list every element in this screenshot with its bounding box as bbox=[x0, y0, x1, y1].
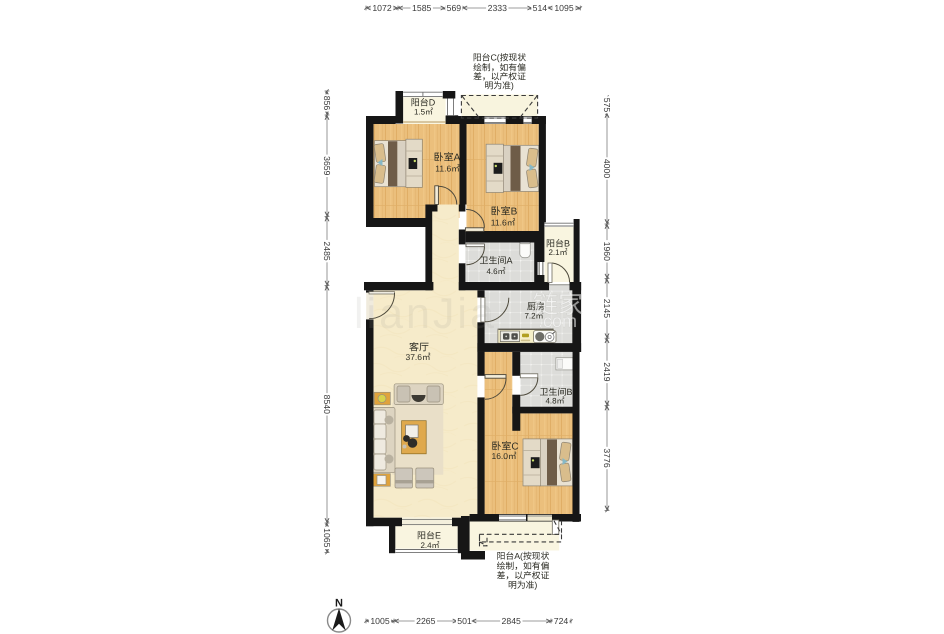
svg-text:3776: 3776 bbox=[602, 448, 612, 467]
svg-text:2145: 2145 bbox=[602, 299, 612, 318]
svg-text:卧室B: 卧室B bbox=[491, 206, 518, 218]
svg-text:1065: 1065 bbox=[322, 528, 332, 547]
svg-text:1585: 1585 bbox=[412, 3, 431, 13]
svg-text:501: 501 bbox=[457, 616, 472, 626]
svg-text:明为准): 明为准) bbox=[485, 81, 514, 91]
svg-text:差，以产权证: 差，以产权证 bbox=[497, 570, 550, 580]
svg-text:11.6㎡: 11.6㎡ bbox=[491, 218, 516, 228]
svg-text:阳台B: 阳台B bbox=[546, 239, 570, 249]
svg-text:16.0㎡: 16.0㎡ bbox=[491, 451, 517, 461]
svg-text:.com: .com bbox=[538, 311, 577, 331]
svg-text:2.1㎡: 2.1㎡ bbox=[548, 248, 567, 257]
svg-text:3659: 3659 bbox=[322, 156, 332, 175]
svg-text:37.6㎡: 37.6㎡ bbox=[405, 352, 431, 362]
svg-text:阳台D: 阳台D bbox=[411, 98, 436, 108]
svg-text:1.5㎡: 1.5㎡ bbox=[414, 108, 433, 117]
svg-text:2419: 2419 bbox=[602, 362, 612, 381]
svg-text:卫生间A: 卫生间A bbox=[479, 256, 512, 266]
svg-text:阳台A(按现状: 阳台A(按现状 bbox=[497, 551, 550, 561]
svg-text:阳台E: 阳台E bbox=[417, 531, 441, 541]
svg-text:569: 569 bbox=[447, 3, 462, 13]
svg-text:2265: 2265 bbox=[416, 616, 435, 626]
svg-text:1072: 1072 bbox=[372, 3, 391, 13]
svg-text:575: 575 bbox=[602, 98, 612, 113]
svg-text:2.4㎡: 2.4㎡ bbox=[420, 541, 439, 550]
svg-text:2845: 2845 bbox=[502, 616, 521, 626]
svg-text:明为准): 明为准) bbox=[508, 580, 537, 590]
svg-text:724: 724 bbox=[554, 616, 569, 626]
svg-text:卫生间B: 卫生间B bbox=[539, 387, 572, 397]
svg-text:2485: 2485 bbox=[322, 241, 332, 260]
svg-text:卧室A: 卧室A bbox=[434, 152, 461, 164]
svg-text:514: 514 bbox=[533, 3, 548, 13]
svg-text:阳台C(按现状: 阳台C(按现状 bbox=[473, 52, 526, 62]
svg-text:1095: 1095 bbox=[554, 3, 573, 13]
svg-text:1960: 1960 bbox=[602, 242, 612, 261]
svg-text:N: N bbox=[335, 598, 343, 610]
svg-text:4000: 4000 bbox=[602, 159, 612, 178]
svg-text:2333: 2333 bbox=[488, 3, 507, 13]
svg-text:lianJia: lianJia bbox=[354, 290, 497, 338]
svg-text:绘制，如有偏: 绘制，如有偏 bbox=[497, 561, 550, 571]
svg-text:4.8㎡: 4.8㎡ bbox=[545, 397, 564, 406]
svg-text:4.6㎡: 4.6㎡ bbox=[486, 267, 505, 276]
svg-text:8540: 8540 bbox=[322, 395, 332, 414]
svg-text:1005: 1005 bbox=[370, 616, 389, 626]
svg-text:856: 856 bbox=[322, 96, 332, 111]
svg-text:11.6㎡: 11.6㎡ bbox=[435, 164, 460, 174]
